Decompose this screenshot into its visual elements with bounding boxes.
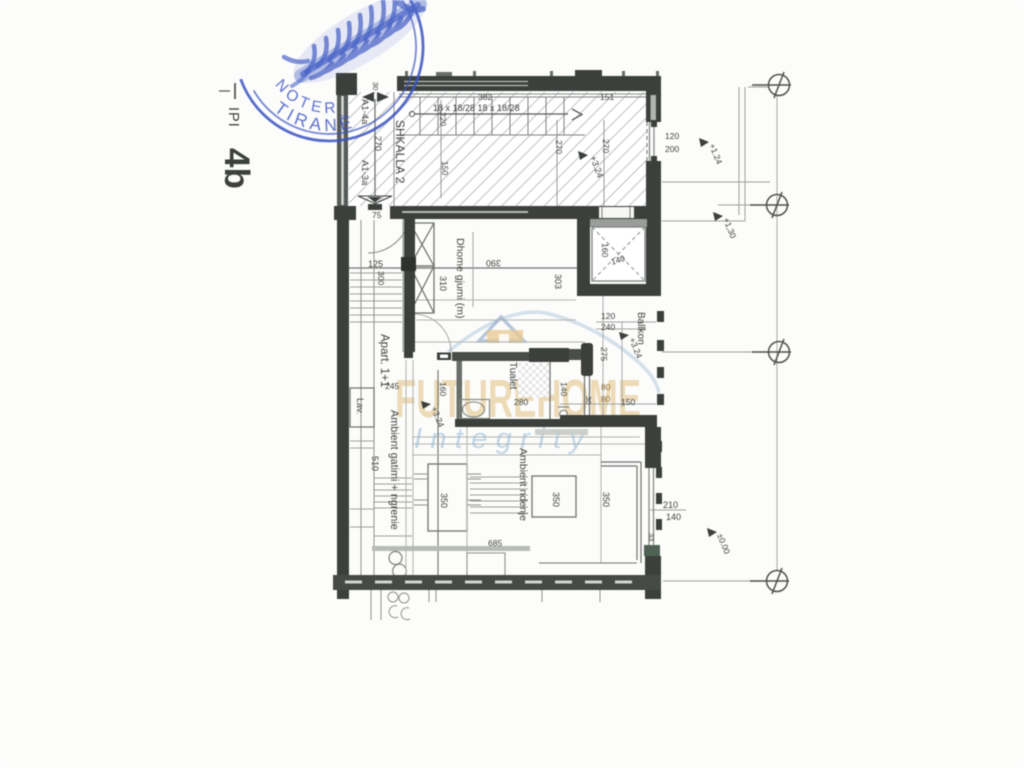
svg-text:80: 80 bbox=[601, 382, 611, 392]
svg-text:150: 150 bbox=[440, 161, 450, 175]
svg-text:151: 151 bbox=[600, 92, 614, 102]
svg-text:80: 80 bbox=[601, 394, 611, 404]
svg-text:303: 303 bbox=[553, 274, 563, 289]
svg-text:350: 350 bbox=[439, 493, 449, 508]
svg-text:SHKALLA 2: SHKALLA 2 bbox=[393, 120, 407, 184]
svg-text:220: 220 bbox=[438, 112, 448, 126]
svg-text:510: 510 bbox=[370, 456, 380, 471]
svg-text:275: 275 bbox=[599, 347, 609, 361]
svg-text:382: 382 bbox=[478, 92, 492, 102]
svg-text:270: 270 bbox=[601, 139, 611, 153]
svg-text:IPI: IPI bbox=[225, 107, 241, 128]
svg-text:310: 310 bbox=[438, 276, 448, 291]
svg-text:30: 30 bbox=[584, 396, 593, 404]
svg-text:350: 350 bbox=[601, 492, 611, 507]
svg-text:+1.24: +1.24 bbox=[707, 142, 724, 166]
svg-text:30: 30 bbox=[371, 82, 380, 90]
svg-text:A1-4a: A1-4a bbox=[359, 99, 370, 125]
svg-text:120: 120 bbox=[665, 131, 679, 141]
svg-text:Lav.: Lav. bbox=[355, 398, 365, 414]
svg-text:Ambient ndenje: Ambient ndenje bbox=[517, 448, 529, 521]
svg-text:Tualet: Tualet bbox=[507, 362, 518, 390]
svg-text:160: 160 bbox=[438, 382, 448, 396]
svg-text:4b: 4b bbox=[217, 148, 256, 189]
svg-text:300: 300 bbox=[376, 271, 386, 285]
svg-text:+1,30: +1,30 bbox=[721, 216, 738, 240]
svg-text:75: 75 bbox=[372, 210, 382, 220]
svg-text:685: 685 bbox=[488, 538, 502, 548]
svg-text:125: 125 bbox=[368, 259, 383, 269]
svg-text:Integrity: Integrity bbox=[414, 423, 586, 455]
svg-text:Dhome gjumi (m): Dhome gjumi (m) bbox=[454, 238, 466, 319]
svg-text:Ambient gatimi + ngrenie: Ambient gatimi + ngrenie bbox=[388, 410, 400, 530]
svg-text:160: 160 bbox=[600, 243, 610, 257]
svg-text:150: 150 bbox=[621, 397, 635, 407]
svg-text:120: 120 bbox=[601, 311, 615, 321]
svg-text:240: 240 bbox=[601, 322, 615, 332]
svg-text:270: 270 bbox=[554, 140, 564, 154]
svg-text:280: 280 bbox=[514, 397, 528, 407]
svg-text:245: 245 bbox=[385, 381, 399, 391]
svg-text:350: 350 bbox=[551, 492, 561, 507]
svg-text:390: 390 bbox=[486, 258, 501, 268]
svg-text:270: 270 bbox=[373, 136, 383, 151]
svg-text:33: 33 bbox=[647, 533, 656, 541]
svg-text:±0.00: ±0.00 bbox=[715, 532, 732, 556]
svg-text:210: 210 bbox=[663, 500, 678, 510]
svg-text:140: 140 bbox=[666, 512, 681, 522]
svg-text:200: 200 bbox=[665, 144, 679, 154]
svg-text:Apart. 1+1: Apart. 1+1 bbox=[378, 334, 390, 387]
svg-text:A1-3a: A1-3a bbox=[359, 160, 370, 186]
svg-text:140: 140 bbox=[559, 382, 569, 396]
